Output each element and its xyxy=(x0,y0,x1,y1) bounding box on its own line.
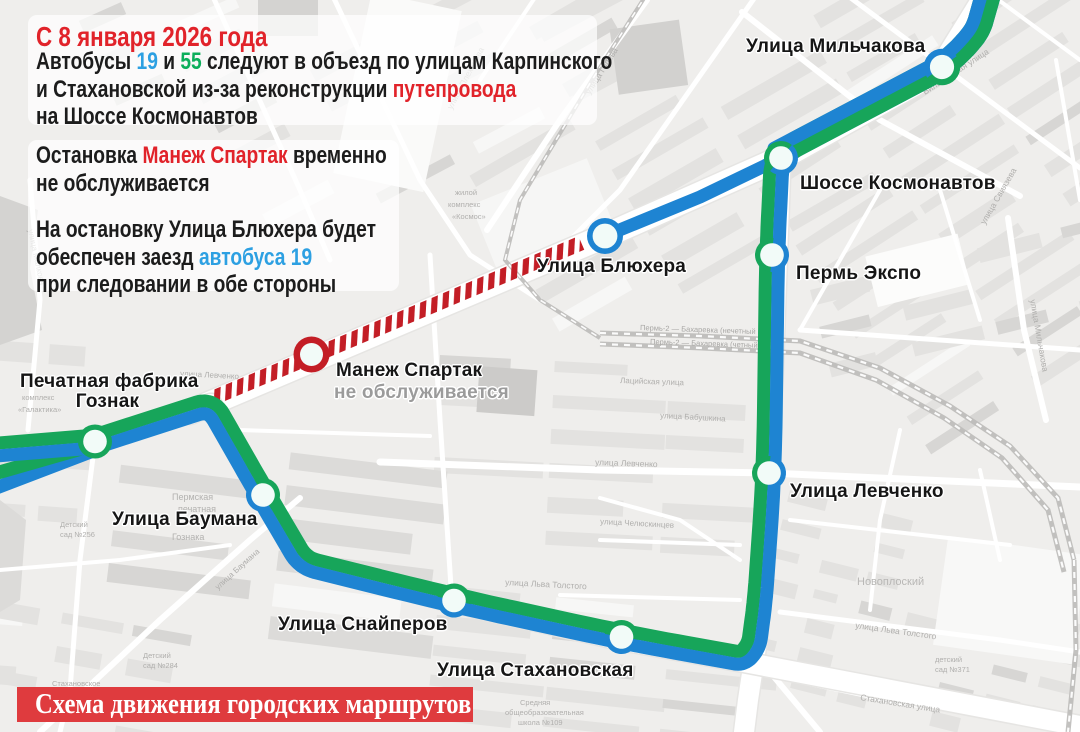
svg-text:Новоплоский: Новоплоский xyxy=(857,576,924,588)
svg-text:детский: детский xyxy=(935,655,962,664)
svg-text:сад №284: сад №284 xyxy=(143,661,178,670)
svg-text:Средняя: Средняя xyxy=(520,698,550,707)
svg-text:общеобразовательная: общеобразовательная xyxy=(505,708,584,717)
svg-text:Детский: Детский xyxy=(143,651,171,660)
svg-text:Детский: Детский xyxy=(60,520,88,529)
svg-text:Пермская: Пермская xyxy=(172,492,213,502)
svg-text:«Космос»: «Космос» xyxy=(452,212,486,221)
svg-text:комплекс: комплекс xyxy=(448,200,481,209)
svg-text:Гознака: Гознака xyxy=(172,532,204,542)
svg-text:школа №109: школа №109 xyxy=(518,718,563,727)
svg-text:жилой: жилой xyxy=(455,188,477,197)
svg-text:сад №371: сад №371 xyxy=(935,665,970,674)
svg-text:сад №256: сад №256 xyxy=(60,530,95,539)
